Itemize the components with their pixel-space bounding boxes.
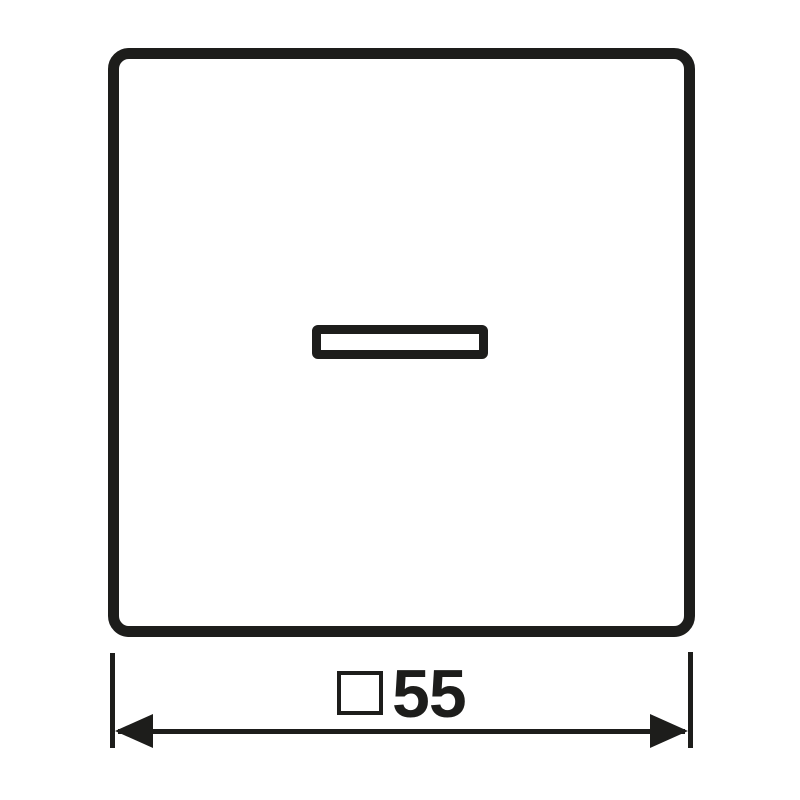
extension-line-right [688,652,693,748]
dimension-label: 55 [337,667,466,719]
arrowhead-right-icon [650,714,688,748]
indicator-lens-window [312,325,488,359]
dimension-drawing: 55 [0,0,800,800]
square-dimension-icon [337,671,383,715]
arrowhead-left-icon [115,714,153,748]
dimension-value: 55 [392,668,466,720]
